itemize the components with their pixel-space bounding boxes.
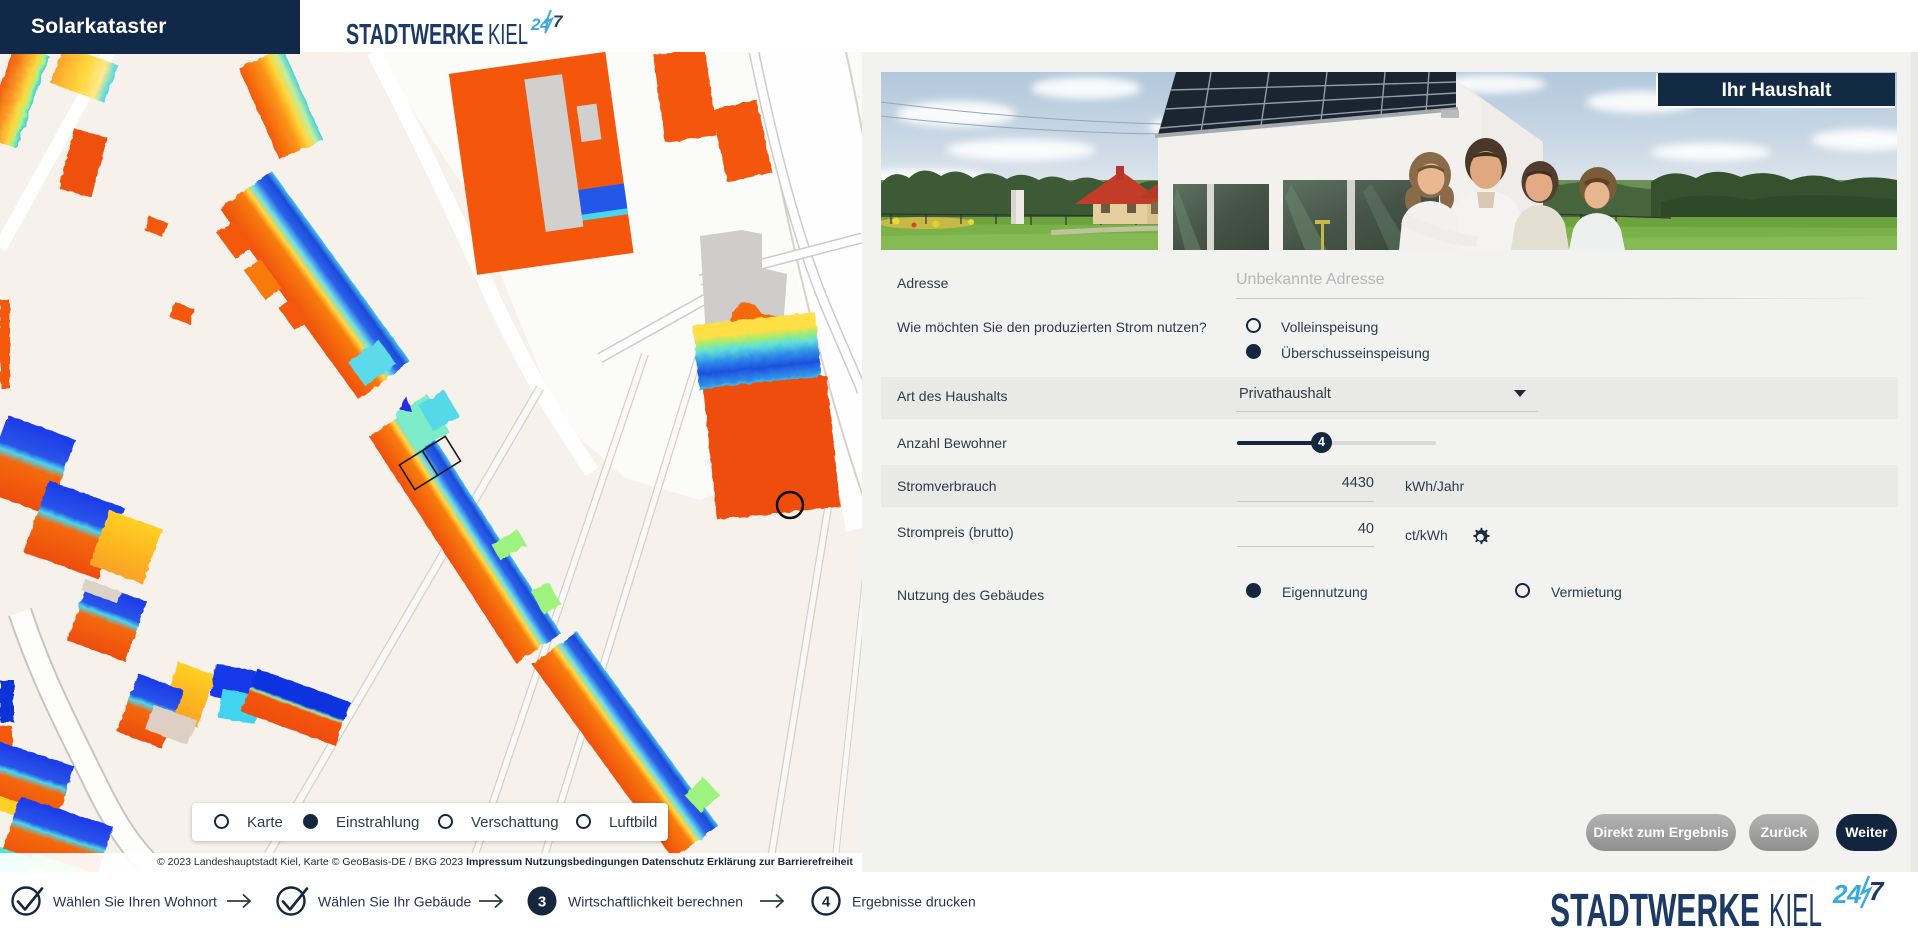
svg-text:KIEL: KIEL xyxy=(488,19,528,51)
svg-text:7: 7 xyxy=(553,12,564,31)
svg-text:Wählen Sie Ihren Wohnort: Wählen Sie Ihren Wohnort xyxy=(53,894,217,910)
svg-text:Ergebnisse drucken: Ergebnisse drucken xyxy=(852,894,976,910)
svg-text:4: 4 xyxy=(822,894,831,911)
svg-text:7: 7 xyxy=(1869,876,1885,906)
svg-text:Wirtschaftlichkeit berechnen: Wirtschaftlichkeit berechnen xyxy=(568,894,743,910)
svg-text:KIEL: KIEL xyxy=(1769,885,1822,928)
svg-text:STADTWERKE: STADTWERKE xyxy=(346,19,484,51)
svg-text:3: 3 xyxy=(538,894,546,911)
svg-text:4: 4 xyxy=(1846,879,1862,909)
svg-text:Wählen Sie Ihr Gebäude: Wählen Sie Ihr Gebäude xyxy=(318,894,472,910)
svg-text:2: 2 xyxy=(1832,879,1848,909)
svg-text:STADTWERKE: STADTWERKE xyxy=(1550,886,1760,928)
